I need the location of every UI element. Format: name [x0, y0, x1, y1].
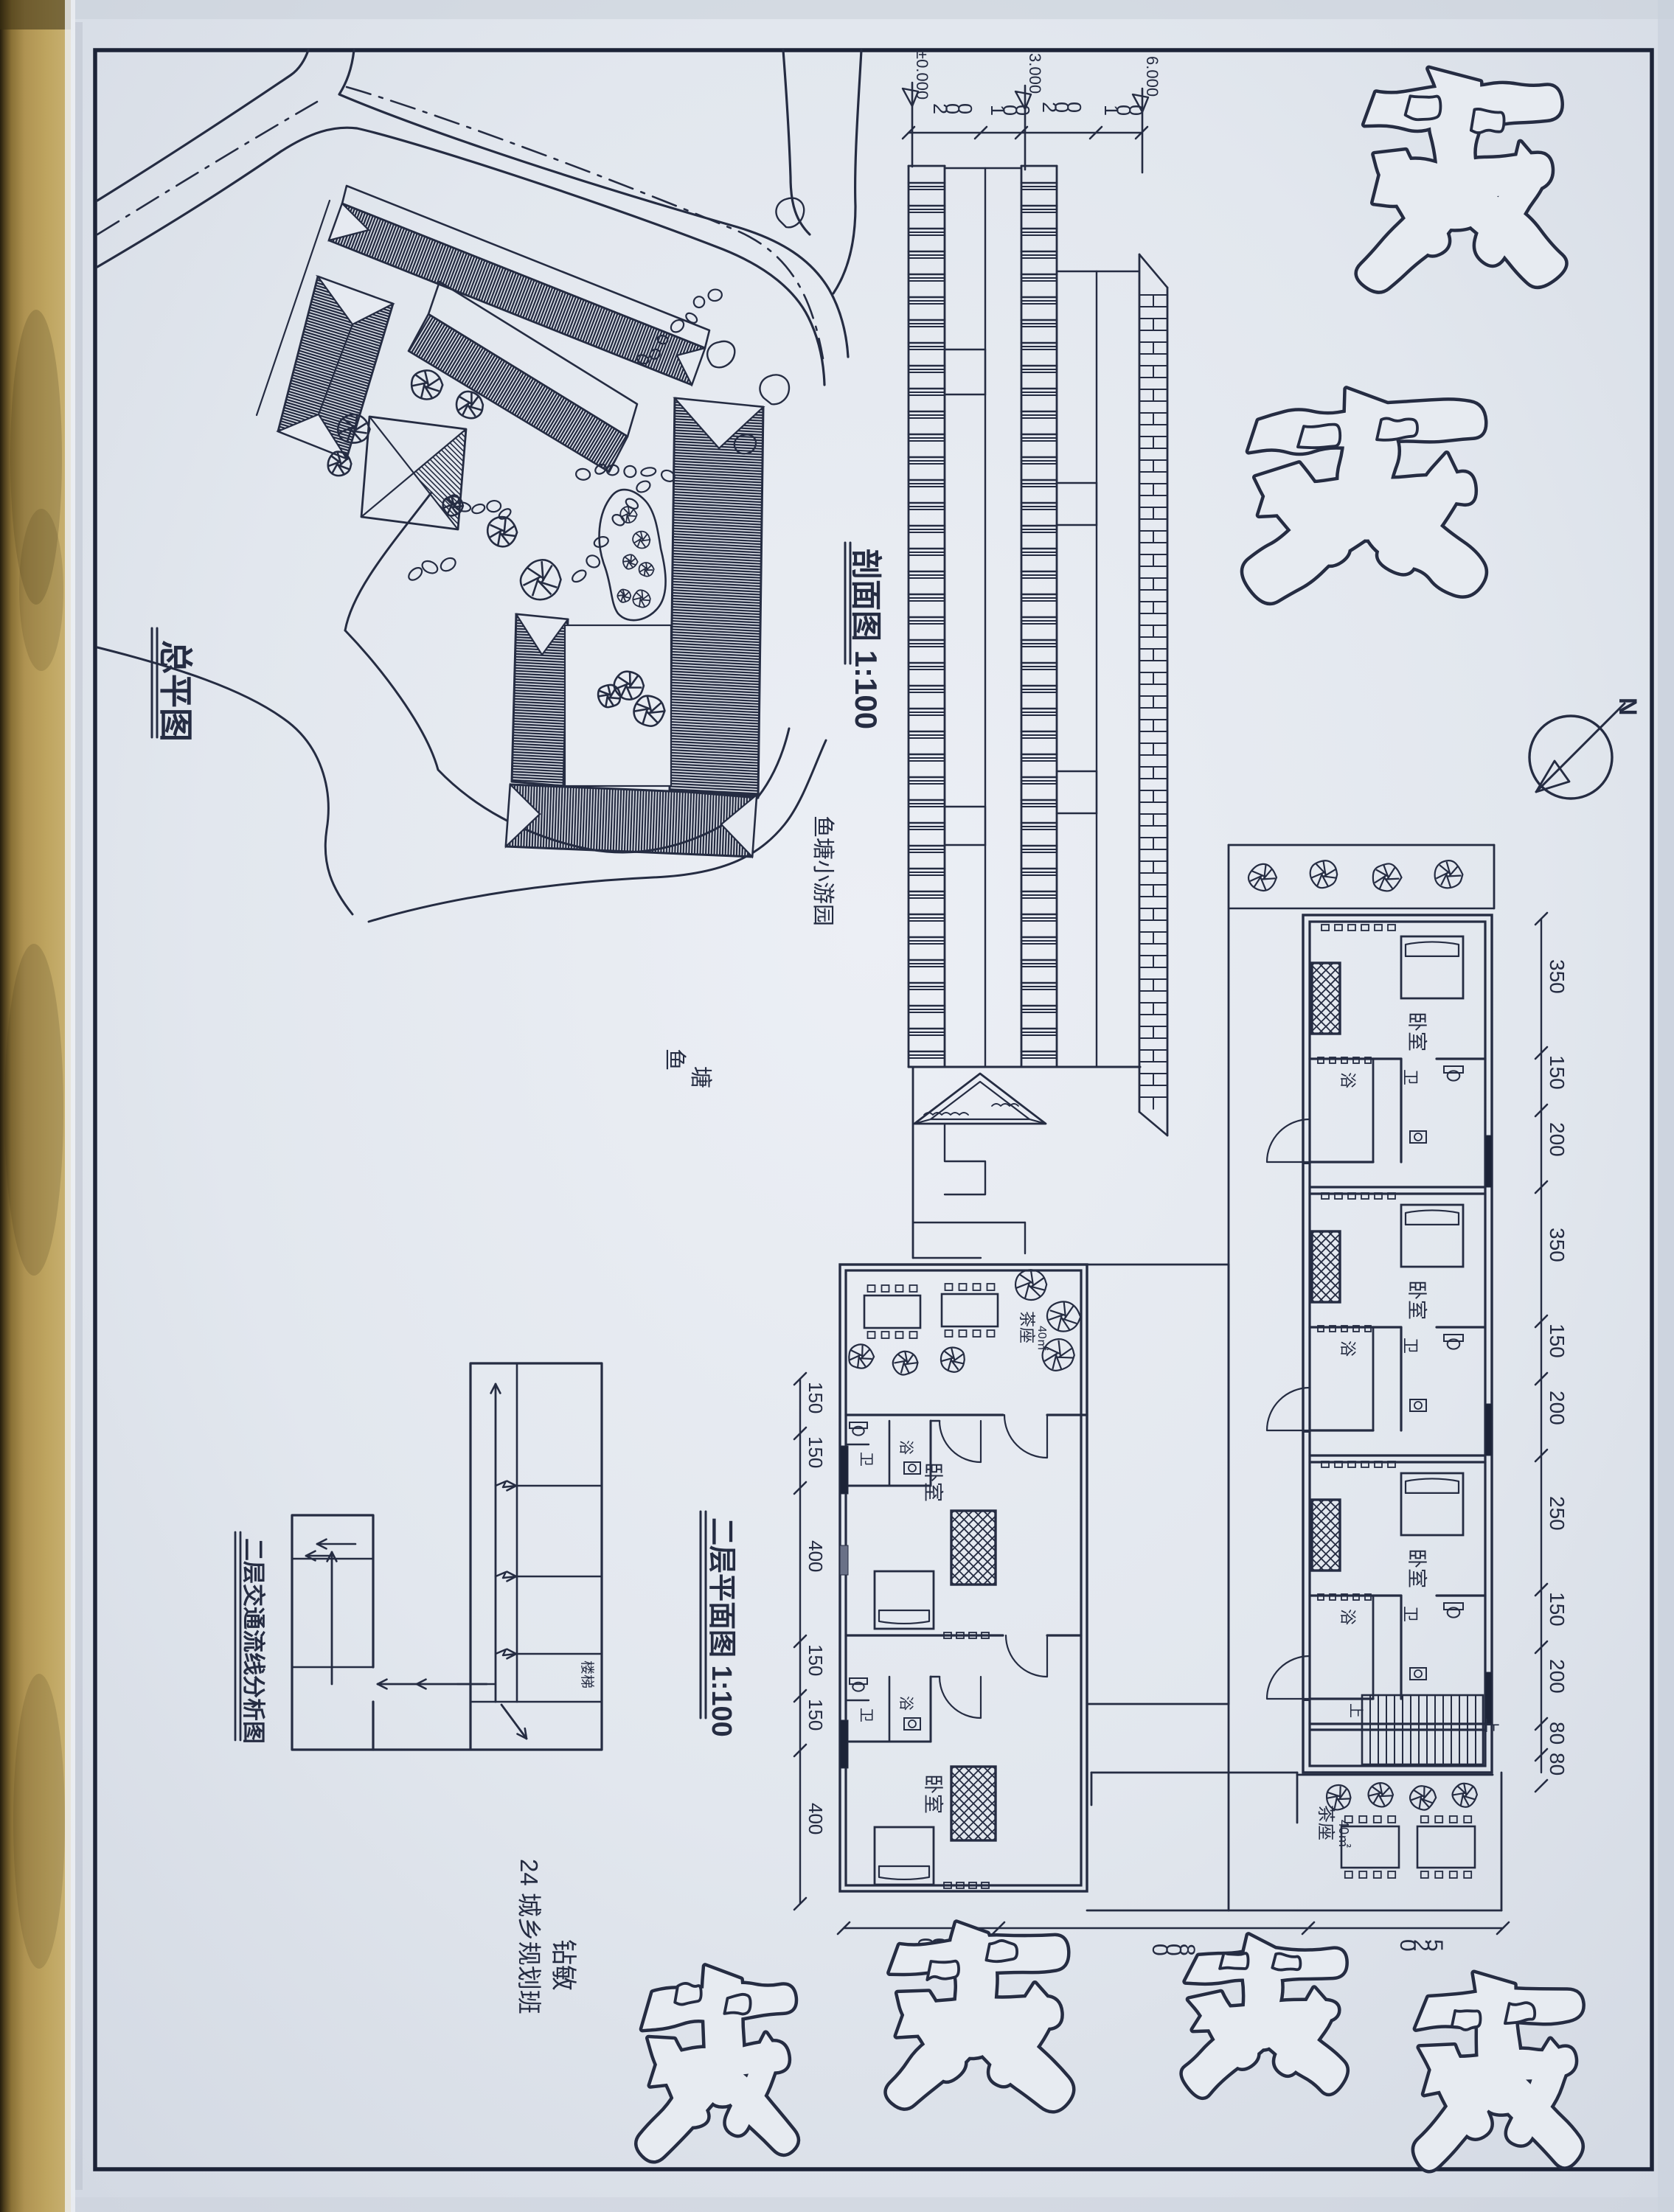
svg-text:±0.000: ±0.000 [913, 50, 931, 100]
svg-text:卧室: 卧室 [922, 1774, 944, 1814]
svg-text:浴: 浴 [1338, 1340, 1357, 1357]
svg-text:350: 350 [1546, 1228, 1569, 1262]
svg-text:80: 80 [1546, 1722, 1569, 1745]
svg-text:0: 0 [954, 103, 976, 114]
svg-text:400: 400 [805, 1540, 827, 1572]
svg-text:浴: 浴 [897, 1440, 914, 1455]
svg-text:卫: 卫 [1401, 1338, 1420, 1354]
svg-text:150: 150 [805, 1699, 827, 1731]
svg-text:24 城乡规划班: 24 城乡规划班 [515, 1859, 543, 2014]
svg-text:200: 200 [1546, 1659, 1569, 1694]
svg-text:鱼: 鱼 [662, 1048, 687, 1071]
svg-text:楼梯: 楼梯 [579, 1660, 595, 1688]
svg-text:N: N [1614, 698, 1642, 716]
svg-text:卫: 卫 [858, 1708, 874, 1722]
svg-text:0: 0 [1063, 102, 1086, 113]
svg-text:上: 上 [1347, 1703, 1364, 1718]
svg-text:350: 350 [1546, 959, 1569, 994]
svg-text:6.000: 6.000 [1143, 56, 1161, 97]
svg-text:150: 150 [805, 1382, 827, 1413]
svg-text:卧室: 卧室 [1406, 1012, 1428, 1051]
svg-text:40㎡: 40㎡ [1336, 1820, 1352, 1848]
svg-text:茶座: 茶座 [1316, 1805, 1336, 1840]
svg-text:剖面图 1:100: 剖面图 1:100 [849, 549, 883, 729]
svg-text:150: 150 [805, 1644, 827, 1676]
svg-text:卫: 卫 [1401, 1606, 1420, 1622]
svg-text:浴: 浴 [1338, 1072, 1357, 1088]
svg-text:卧室: 卧室 [922, 1462, 944, 1502]
svg-text:上: 上 [1483, 1718, 1500, 1733]
svg-text:0: 0 [1012, 105, 1034, 116]
svg-text:0: 0 [1395, 1939, 1420, 1952]
svg-text:150: 150 [1546, 1592, 1569, 1627]
svg-text:总平图: 总平图 [156, 640, 195, 742]
svg-text:150: 150 [1546, 1324, 1569, 1358]
svg-text:80: 80 [1546, 1753, 1569, 1775]
svg-text:40㎡: 40㎡ [1035, 1326, 1049, 1351]
svg-text:二层交通流线分析图: 二层交通流线分析图 [240, 1538, 266, 1744]
svg-text:卧室: 卧室 [1406, 1548, 1428, 1588]
svg-text:鱼塘小游园: 鱼塘小游园 [810, 815, 835, 926]
svg-text:200: 200 [1546, 1391, 1569, 1425]
svg-text:卫: 卫 [1401, 1069, 1420, 1085]
svg-text:400: 400 [805, 1803, 827, 1834]
svg-text:3.000: 3.000 [1026, 53, 1044, 94]
svg-text:250: 250 [1546, 1496, 1569, 1531]
svg-text:卫: 卫 [858, 1452, 874, 1467]
svg-text:浴: 浴 [897, 1696, 914, 1711]
svg-text:0: 0 [1147, 1944, 1172, 1956]
svg-text:浴: 浴 [1338, 1609, 1357, 1625]
svg-text:钻敏: 钻敏 [549, 1939, 577, 1991]
svg-text:150: 150 [1546, 1055, 1569, 1090]
svg-text:卧室: 卧室 [1406, 1280, 1428, 1320]
svg-text:二层平面图 1:100: 二层平面图 1:100 [706, 1517, 737, 1737]
svg-text:200: 200 [1546, 1122, 1569, 1157]
svg-text:塘: 塘 [688, 1066, 712, 1088]
svg-text:150: 150 [805, 1436, 827, 1468]
svg-text:茶座: 茶座 [1018, 1311, 1036, 1343]
